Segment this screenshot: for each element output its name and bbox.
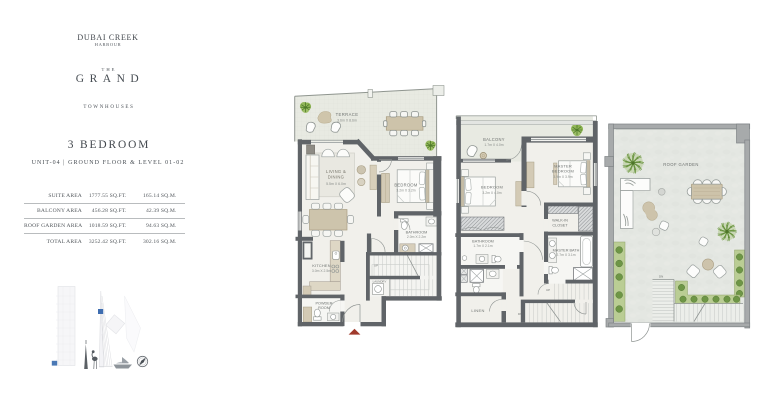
svg-text:ROOM: ROOM [318, 306, 330, 310]
svg-text:3.6m X 8.6m: 3.6m X 8.6m [337, 119, 357, 123]
svg-text:3.9m X 3.9m: 3.9m X 3.9m [553, 175, 572, 179]
svg-text:KITCHEN: KITCHEN [312, 263, 330, 268]
svg-text:BEDROOM: BEDROOM [552, 169, 574, 174]
svg-text:3.0m X 2.5m: 3.0m X 2.5m [312, 269, 331, 273]
svg-text:BEDROOM: BEDROOM [481, 185, 503, 190]
svg-text:BATHROOM: BATHROOM [406, 231, 428, 235]
svg-text:LINEN: LINEN [471, 308, 484, 313]
svg-text:2.7m X 3.1m: 2.7m X 3.1m [556, 253, 575, 257]
svg-text:BALCONY: BALCONY [483, 137, 505, 142]
svg-text:1.7m X 4.0m: 1.7m X 4.0m [484, 143, 503, 147]
svg-text:3.2m X 3.2m: 3.2m X 3.2m [396, 189, 415, 193]
svg-text:UP: UP [546, 288, 550, 292]
svg-text:LAUNDRY: LAUNDRY [373, 280, 387, 284]
svg-text:1.7m X 2.1m: 1.7m X 2.1m [473, 244, 492, 248]
svg-text:BATHROOM: BATHROOM [472, 240, 494, 244]
svg-text:BEDROOM: BEDROOM [394, 183, 418, 188]
svg-text:2.0m X 2.2m: 2.0m X 2.2m [407, 235, 426, 239]
svg-text:MASTER BATH: MASTER BATH [553, 249, 580, 253]
svg-text:LIVING &: LIVING & [326, 169, 346, 174]
svg-text:CLOSET: CLOSET [552, 224, 568, 228]
svg-text:DN: DN [659, 275, 663, 279]
svg-text:3.2m X 4.0m: 3.2m X 4.0m [482, 191, 501, 195]
svg-text:DINING: DINING [328, 175, 344, 180]
svg-text:POWDER: POWDER [315, 302, 332, 306]
svg-text:UP: UP [374, 264, 378, 268]
svg-text:ROOF GARDEN: ROOF GARDEN [663, 162, 699, 167]
svg-text:WALK-IN: WALK-IN [552, 219, 568, 223]
svg-text:5.5m X 6.0m: 5.5m X 6.0m [326, 182, 346, 186]
svg-text:TERRACE: TERRACE [336, 112, 359, 117]
